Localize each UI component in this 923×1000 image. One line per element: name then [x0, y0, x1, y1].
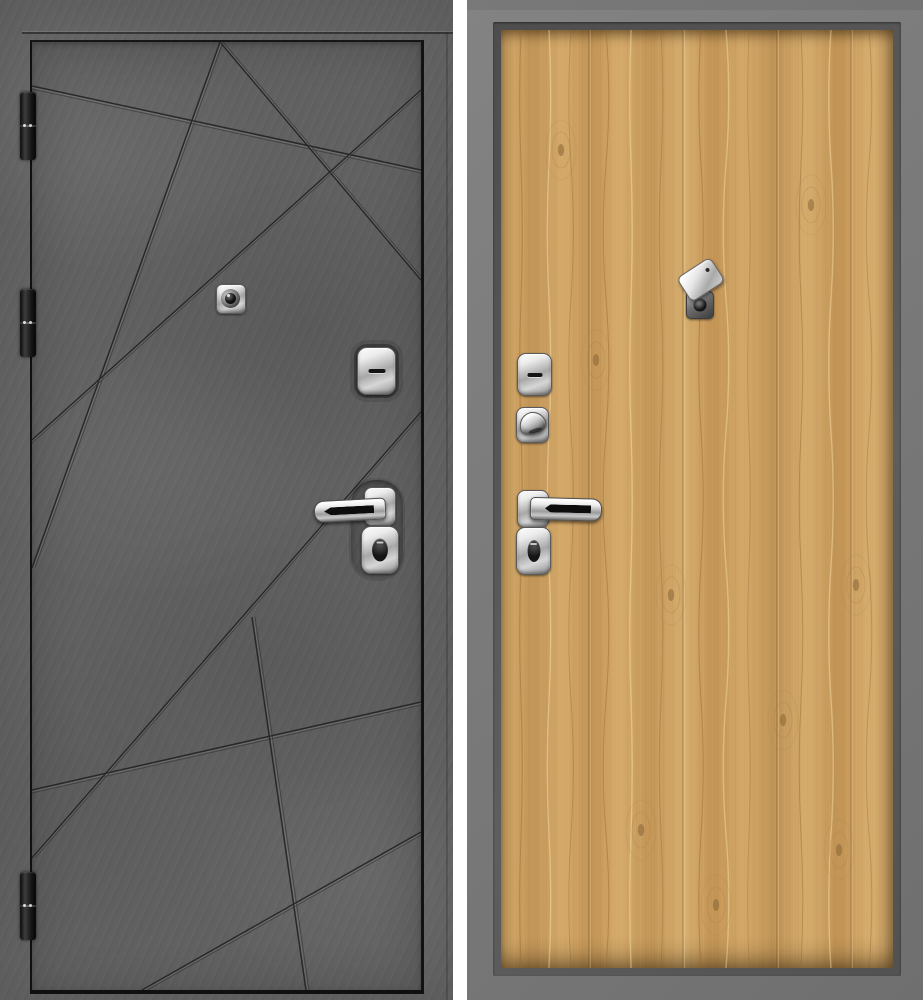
hinge-bottom	[20, 872, 36, 940]
deadbolt-slot	[368, 369, 385, 373]
handle-grip-insert-interior	[545, 504, 591, 513]
peephole-exterior	[216, 284, 246, 314]
deadbolt-escutcheon-interior	[517, 353, 552, 396]
keyhole-interior	[527, 540, 540, 562]
door-handle-exterior	[314, 497, 387, 523]
door-product-photo	[0, 0, 923, 1000]
keyhole-exterior	[372, 539, 388, 562]
door-handle-interior	[530, 497, 603, 522]
handle-grip-insert	[324, 505, 374, 516]
deadbolt-slot-interior	[527, 373, 542, 377]
cylinder-escutcheon-exterior	[361, 526, 399, 574]
hinge-top	[20, 92, 36, 160]
image-divider	[453, 0, 467, 1000]
hinge-middle	[20, 289, 36, 357]
cylinder-escutcheon-interior	[516, 527, 551, 575]
peephole-glint	[227, 294, 230, 297]
frame-edge-line	[446, 33, 448, 1000]
deadbolt-escutcheon-exterior	[357, 347, 396, 395]
frame-rebate-line	[22, 31, 453, 34]
